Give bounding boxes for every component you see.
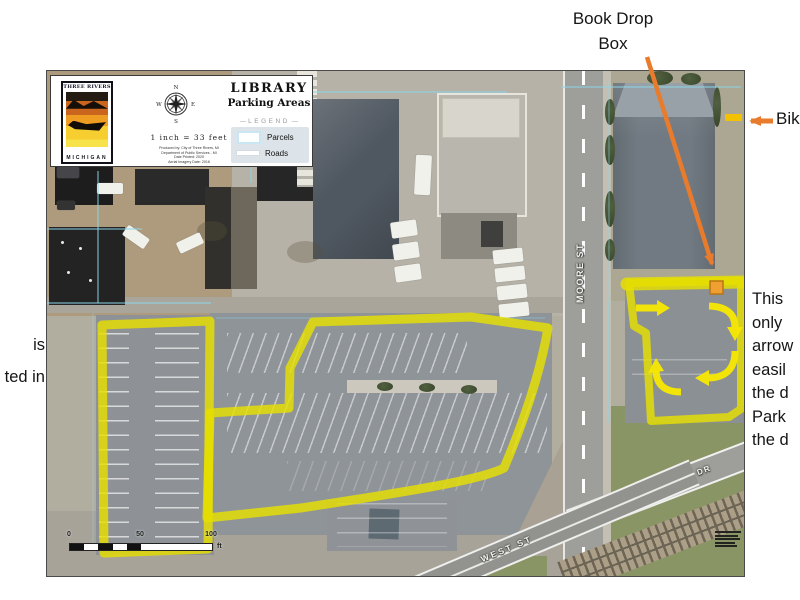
legend-item-parcels: Parcels [237, 130, 307, 144]
bike-rack-label-clipped: Bik [776, 109, 800, 129]
compass-e: E [191, 102, 195, 108]
legend-panel: Parcels Roads [231, 127, 309, 163]
highlight-west-lot [102, 321, 210, 553]
map-smallprint [715, 531, 741, 549]
logo-city-name: THREE RIVERS [63, 84, 111, 90]
map-title-line2: Parking Areas [227, 97, 311, 109]
legend-item-roads: Roads [237, 146, 307, 160]
book-drop-box-marker [710, 281, 723, 294]
book-drop-label: Book Drop Box [538, 6, 688, 56]
legend-label: Roads [265, 149, 288, 158]
legend-heading: LEGEND [227, 118, 311, 125]
logo-state-name: MICHIGAN [63, 155, 111, 161]
three-rivers-logo: THREE RIVERS MICHIGAN [61, 81, 113, 164]
scale-tick-0: 0 [67, 531, 71, 538]
book-drop-label-line1: Book Drop [538, 6, 688, 31]
kayaker-silhouette [68, 121, 106, 131]
moore-street-label: MOORE ST [575, 243, 585, 303]
parking-highlight-outlines [102, 281, 743, 553]
flow-arrow-turn-down [709, 306, 735, 327]
scale-tick-50: 50 [136, 531, 144, 538]
book-drop-label-line2: Box [538, 31, 688, 56]
roads-swatch-icon [237, 151, 259, 155]
parcels-swatch-icon [237, 131, 261, 144]
map-attribution: Produced by: City of Three Rivers, MI De… [137, 146, 241, 164]
highlight-library-top-band [627, 282, 743, 284]
figure-library-parking-map: RAILROAD DR WEST ST MOORE ST [0, 0, 800, 600]
scale-bar-segments [69, 543, 213, 551]
side-note-left-clipped: is ted in [0, 329, 45, 393]
map-title: LIBRARY Parking Areas [227, 81, 311, 109]
treeline-silhouette [66, 100, 108, 109]
aerial-map: RAILROAD DR WEST ST MOORE ST [46, 70, 745, 577]
highlight-library-lot [629, 281, 741, 421]
scale-unit: ft [217, 543, 222, 550]
map-title-line1: LIBRARY [227, 81, 311, 97]
flow-arrow-turn-up [656, 371, 681, 392]
map-scale-text: 1 inch = 33 feet [139, 133, 239, 142]
flow-arrowhead [695, 370, 709, 386]
scale-bar: 0 50 100 ft [63, 531, 243, 559]
compass-n: N [174, 85, 179, 91]
compass-w: W [156, 102, 162, 108]
flow-arrowhead [657, 300, 670, 316]
scale-tick-100: 100 [205, 531, 217, 538]
legend-label: Parcels [267, 133, 294, 142]
compass-rose-icon: N E S W [155, 82, 197, 124]
compass-s: S [174, 119, 178, 124]
flow-arrow-turn-left [709, 351, 735, 378]
kayaker-artwork [66, 92, 108, 147]
map-header-card: THREE RIVERS MICHIGAN N E [50, 75, 313, 167]
highlight-main-lot [207, 317, 548, 518]
side-note-right-clipped: This only arrow easil the d Park the d [752, 288, 800, 453]
bike-rack-marker [725, 114, 742, 121]
